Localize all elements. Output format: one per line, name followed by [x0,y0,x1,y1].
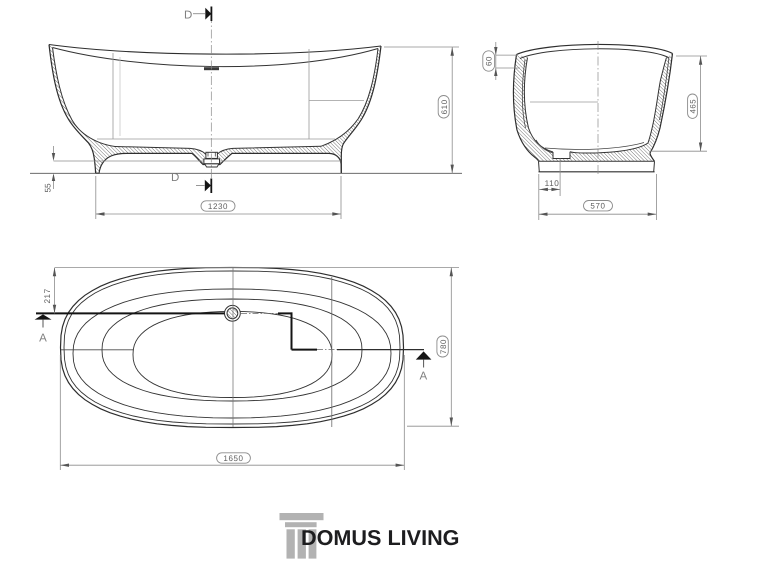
svg-text:60: 60 [485,56,494,66]
svg-text:D: D [171,172,179,184]
svg-text:780: 780 [439,339,448,354]
svg-text:1650: 1650 [223,454,243,463]
svg-text:610: 610 [440,99,449,114]
svg-text:217: 217 [43,288,52,303]
svg-text:1230: 1230 [208,202,228,211]
svg-text:DOMUS LIVING: DOMUS LIVING [301,526,460,550]
svg-text:110: 110 [545,179,560,188]
svg-text:570: 570 [590,202,605,211]
svg-text:465: 465 [688,99,697,114]
svg-text:A: A [419,371,427,383]
svg-text:A: A [39,333,47,345]
svg-text:D: D [184,10,192,22]
svg-text:55: 55 [44,183,53,193]
